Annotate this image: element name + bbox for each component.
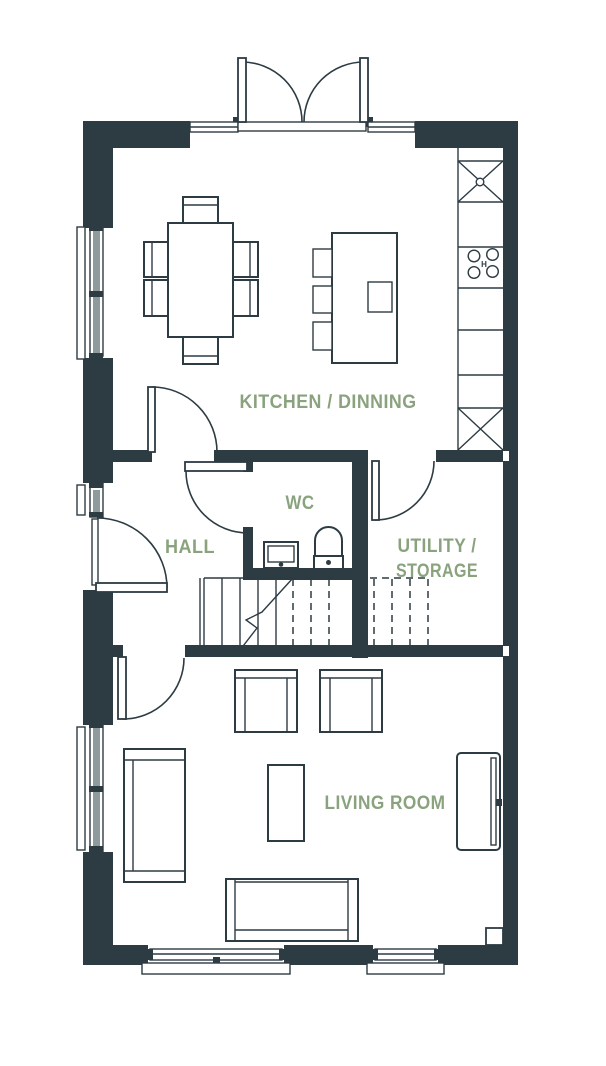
door-leaf: [372, 461, 379, 520]
dining-chair: [183, 337, 218, 364]
wall-left-b: [83, 358, 113, 483]
label-living-room: LIVING ROOM: [325, 793, 446, 814]
window-living-bottom-left: [142, 949, 290, 974]
window-outer-sill: [77, 485, 85, 515]
unit-marker: [476, 178, 484, 186]
window-outer-sill: [77, 227, 85, 359]
corner-box: [486, 928, 503, 945]
french-doors: [238, 58, 368, 122]
island-stool: [313, 286, 332, 313]
window-glazing: [93, 231, 100, 291]
window-glazing: [93, 297, 100, 353]
dining-chair: [233, 280, 258, 316]
sofa-bottom: [226, 879, 358, 941]
window-cap: [89, 512, 103, 517]
tv-mount: [496, 799, 502, 806]
label-utility-line1: UTILITY /: [398, 536, 477, 557]
window-glazing: [93, 490, 100, 512]
door-leaf: [185, 462, 247, 471]
wall-living-north: [185, 645, 503, 657]
label-kitchen-dining: KITCHEN / DINNING: [240, 392, 417, 413]
island-stool: [313, 322, 332, 350]
island-stool: [313, 249, 332, 277]
window-kitchen-left: [77, 225, 103, 359]
wall-kitchen-wc: [214, 450, 352, 462]
unit-cross: [458, 408, 503, 450]
door-leaf: [148, 387, 155, 452]
window-glazing: [93, 792, 100, 846]
kitchen-island: [332, 233, 397, 363]
hob: H: [468, 249, 498, 279]
stair-direction-line: [240, 578, 293, 650]
window-cap: [89, 291, 103, 297]
stairs: [200, 578, 429, 650]
dining-furniture: [144, 197, 397, 364]
wall-kitchen-utility: [436, 450, 503, 462]
door-swing-arc: [97, 518, 167, 588]
armchair: [235, 670, 297, 732]
floor-plan: H: [0, 0, 606, 1066]
tv-unit: [457, 753, 502, 850]
dining-chair: [144, 242, 168, 277]
door-swing-arc: [123, 658, 184, 719]
hob-label: H: [481, 260, 487, 269]
hob-ring: [487, 266, 499, 278]
hob-ring: [487, 249, 499, 261]
door-swing-arc: [152, 387, 217, 452]
hob-ring: [468, 250, 480, 262]
window-kitchen-top-left: [190, 122, 238, 132]
armchair: [320, 670, 382, 732]
wc-door: [185, 462, 248, 533]
living-room-door: [118, 657, 184, 719]
sofa-left: [124, 749, 185, 882]
door-leaf: [238, 58, 246, 122]
kitchen-fixtures: H: [458, 148, 503, 450]
wall-joint-notch: [503, 646, 509, 656]
window-cap: [89, 846, 103, 852]
window-living-bottom-right: [367, 949, 444, 974]
window-living-left: [77, 722, 103, 852]
wall-living-stub: [105, 645, 123, 657]
door-swing-arc: [375, 461, 434, 520]
wall-joint-notch: [503, 451, 509, 461]
hob-ring: [468, 267, 480, 279]
wall-wc-east: [352, 450, 368, 658]
window-cap: [279, 949, 284, 960]
door-swing-arc: [242, 62, 302, 122]
dining-chair: [233, 242, 258, 277]
wall-bottom-a: [83, 945, 148, 965]
toilet-flush: [326, 560, 331, 565]
toilet-bowl: [315, 527, 342, 557]
wall-hall-kitchen-stub: [108, 450, 152, 462]
floor-plan-canvas: H: [0, 0, 606, 1066]
window-cap: [89, 786, 103, 792]
wall-bottom-c: [438, 945, 518, 965]
dining-chair: [144, 280, 168, 316]
tall-unit-bottom: [458, 408, 503, 450]
door-leaf: [96, 583, 167, 592]
window-cap: [89, 353, 103, 359]
kitchen-door: [148, 387, 217, 452]
wall-top-right: [415, 121, 518, 148]
wall-bottom-b: [284, 945, 373, 965]
coffee-table: [268, 765, 304, 841]
door-swing-arc: [186, 471, 248, 533]
dining-chair: [183, 197, 218, 223]
window-cap: [89, 483, 103, 488]
door-leaf: [360, 58, 368, 122]
door-leaf: [118, 657, 126, 719]
window-cap: [89, 225, 103, 231]
window-outer-sill: [142, 963, 290, 974]
utility-door: [372, 461, 434, 520]
tall-unit-top: [458, 161, 503, 202]
window-mid-joint: [213, 957, 220, 963]
window-hall-left: [77, 483, 103, 517]
window-glazing: [93, 728, 100, 786]
doors: [92, 58, 434, 719]
wall-right: [503, 121, 518, 965]
sink-tap: [279, 562, 284, 567]
door-swing-arc: [304, 62, 364, 122]
wc-fixtures: [264, 527, 343, 569]
label-utility-line2: STORAGE: [396, 561, 478, 582]
door-jamb-line: [92, 519, 98, 585]
window-cap: [89, 722, 103, 728]
french-door-threshold: [238, 122, 366, 131]
label-hall: HALL: [165, 537, 215, 558]
wall-left-c: [83, 590, 113, 725]
dining-table: [168, 223, 233, 337]
front-door: [92, 518, 167, 592]
window-cap: [434, 949, 439, 960]
window-outer-sill: [367, 963, 444, 974]
wall-left-a: [83, 121, 113, 228]
window-cap: [373, 949, 378, 960]
window-kitchen-top-right: [368, 122, 415, 132]
window-outer-sill: [77, 727, 85, 850]
label-wc: WC: [286, 493, 315, 514]
living-furniture: [124, 670, 503, 945]
window-cap: [148, 949, 153, 960]
